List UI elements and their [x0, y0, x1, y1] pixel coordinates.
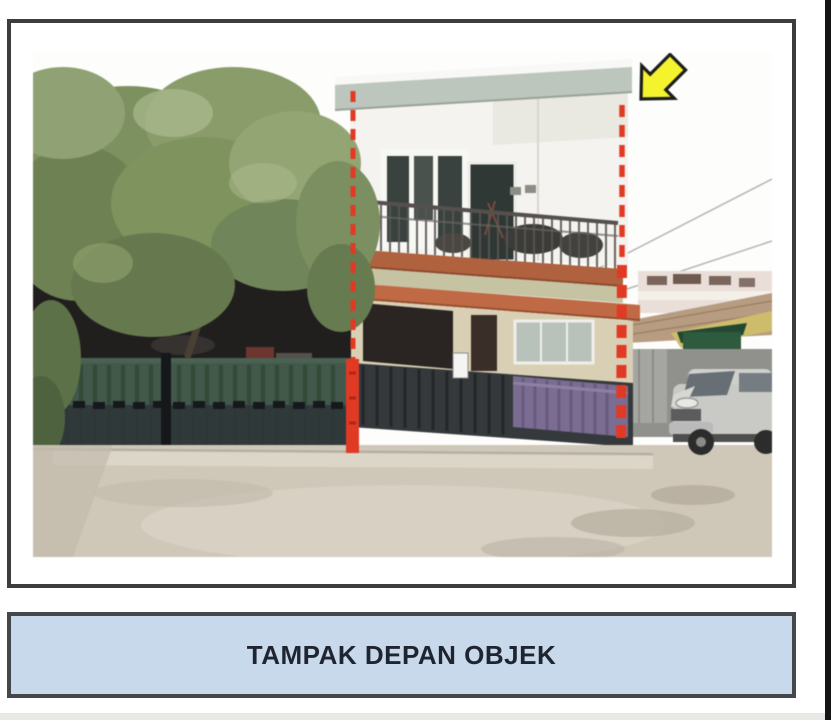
property-photo	[33, 53, 772, 557]
page-table-border	[825, 0, 831, 720]
subject-house	[335, 59, 640, 447]
object-boundary-right	[621, 105, 622, 445]
road	[33, 445, 772, 557]
photo-caption-bar: TAMPAK DEPAN OBJEK	[7, 612, 796, 698]
photo-frame	[7, 19, 796, 588]
next-row-edge	[0, 713, 825, 720]
photo-caption-label: TAMPAK DEPAN OBJEK	[247, 640, 556, 671]
